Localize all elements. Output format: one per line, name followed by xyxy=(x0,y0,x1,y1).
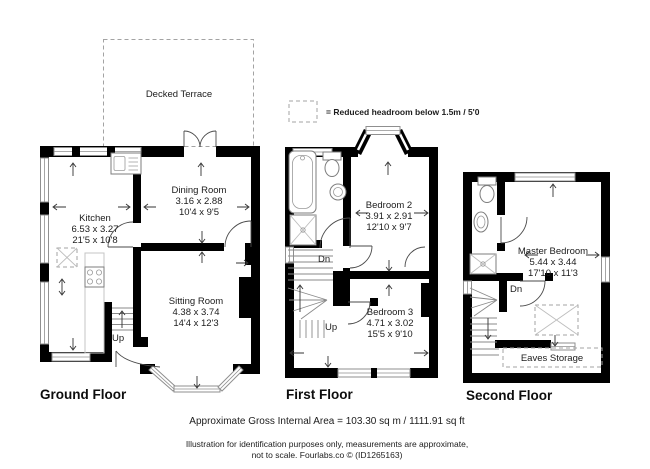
bedroom3-metric: 4.71 x 3.02 xyxy=(366,318,413,329)
french-door-right xyxy=(200,131,216,147)
master-metric: 5.44 x 3.44 xyxy=(529,257,576,268)
basin-icon xyxy=(474,212,488,232)
second-floor-title: Second Floor xyxy=(466,388,553,403)
terrace-label: Decked Terrace xyxy=(146,89,212,100)
sitting-metric: 4.38 x 3.74 xyxy=(172,307,219,318)
dining-name: Dining Room xyxy=(172,185,227,196)
ground-floor-title: Ground Floor xyxy=(40,387,127,402)
shower-icon xyxy=(290,215,316,245)
shower-icon xyxy=(470,254,496,274)
eaves-storage-label: Eaves Storage xyxy=(521,353,583,364)
legend-text: = Reduced headroom below 1.5m / 5'0 xyxy=(326,107,480,117)
bedroom2-door xyxy=(350,246,372,268)
first-floor-plan: Dn Up Bedroom 2 3.91 x 2.91 12'10 x 9'7 … xyxy=(285,127,438,403)
sitting-name: Sitting Room xyxy=(169,296,223,307)
first-dn-label: Dn xyxy=(318,254,330,265)
second-floor-plan: Dn Eaves Storage Master Bedroom 5.44 x 3… xyxy=(463,172,610,403)
ground-floor-plan: Decked Terrace xyxy=(40,40,260,403)
bath-icon xyxy=(289,151,316,213)
sink-icon xyxy=(111,153,141,174)
bedroom3-name: Bedroom 3 xyxy=(367,307,413,318)
second-bathroom-fixtures xyxy=(470,177,496,274)
floorplan-document: Decked Terrace xyxy=(0,0,650,469)
stove-icon xyxy=(85,267,104,287)
bedroom2-name: Bedroom 2 xyxy=(366,200,412,211)
reduced-headroom-area xyxy=(535,305,578,335)
master-imperial: 17'10 x 11'3 xyxy=(528,268,578,279)
first-floor-title: First Floor xyxy=(286,387,353,402)
eaves-storage: Eaves Storage xyxy=(503,348,602,367)
ground-stairs: Up xyxy=(112,308,133,344)
ground-up-label: Up xyxy=(112,333,124,344)
kitchen-name: Kitchen xyxy=(79,213,111,224)
cupboard-door xyxy=(405,247,425,267)
toilet-icon xyxy=(323,152,341,177)
floorplan-canvas: Decked Terrace xyxy=(0,0,650,469)
kitchen-imperial: 21'5 x 10'8 xyxy=(72,235,117,246)
second-dn-label: Dn xyxy=(510,284,522,295)
bedroom2-imperial: 12'10 x 9'7 xyxy=(366,222,411,233)
second-bathroom-door xyxy=(501,217,527,243)
french-door-left xyxy=(184,131,200,147)
first-bay-window xyxy=(357,127,409,154)
legend-swatch xyxy=(289,101,317,122)
master-name: Master Bedroom xyxy=(518,246,588,257)
dining-metric: 3.16 x 2.88 xyxy=(175,196,222,207)
footer: Approximate Gross Internal Area = 103.30… xyxy=(186,416,468,460)
first-bathroom-fixtures xyxy=(289,151,346,245)
disclaimer-line1: Illustration for identification purposes… xyxy=(186,439,468,449)
kitchen-metric: 6.53 x 3.27 xyxy=(71,224,118,235)
ground-bay-window xyxy=(149,366,243,392)
first-up-label: Up xyxy=(325,322,337,333)
bedroom2-metric: 3.91 x 2.91 xyxy=(365,211,412,222)
sitting-imperial: 14'4 x 12'3 xyxy=(173,318,218,329)
gross-internal-area: Approximate Gross Internal Area = 103.30… xyxy=(189,416,465,427)
kitchen-fixtures xyxy=(57,153,141,353)
rooflight-icon xyxy=(57,248,77,267)
first-stairs: Dn Up xyxy=(288,250,337,338)
master-bedroom-door xyxy=(520,281,545,306)
legend: = Reduced headroom below 1.5m / 5'0 xyxy=(289,101,480,122)
dining-imperial: 10'4 x 9'5 xyxy=(179,207,219,218)
basin-icon xyxy=(330,184,346,200)
bedroom3-imperial: 15'5 x 9'10 xyxy=(367,329,412,340)
toilet-icon xyxy=(478,177,496,203)
disclaimer-line2: not to scale. Fourlabs.co © (ID1265163) xyxy=(252,450,403,460)
